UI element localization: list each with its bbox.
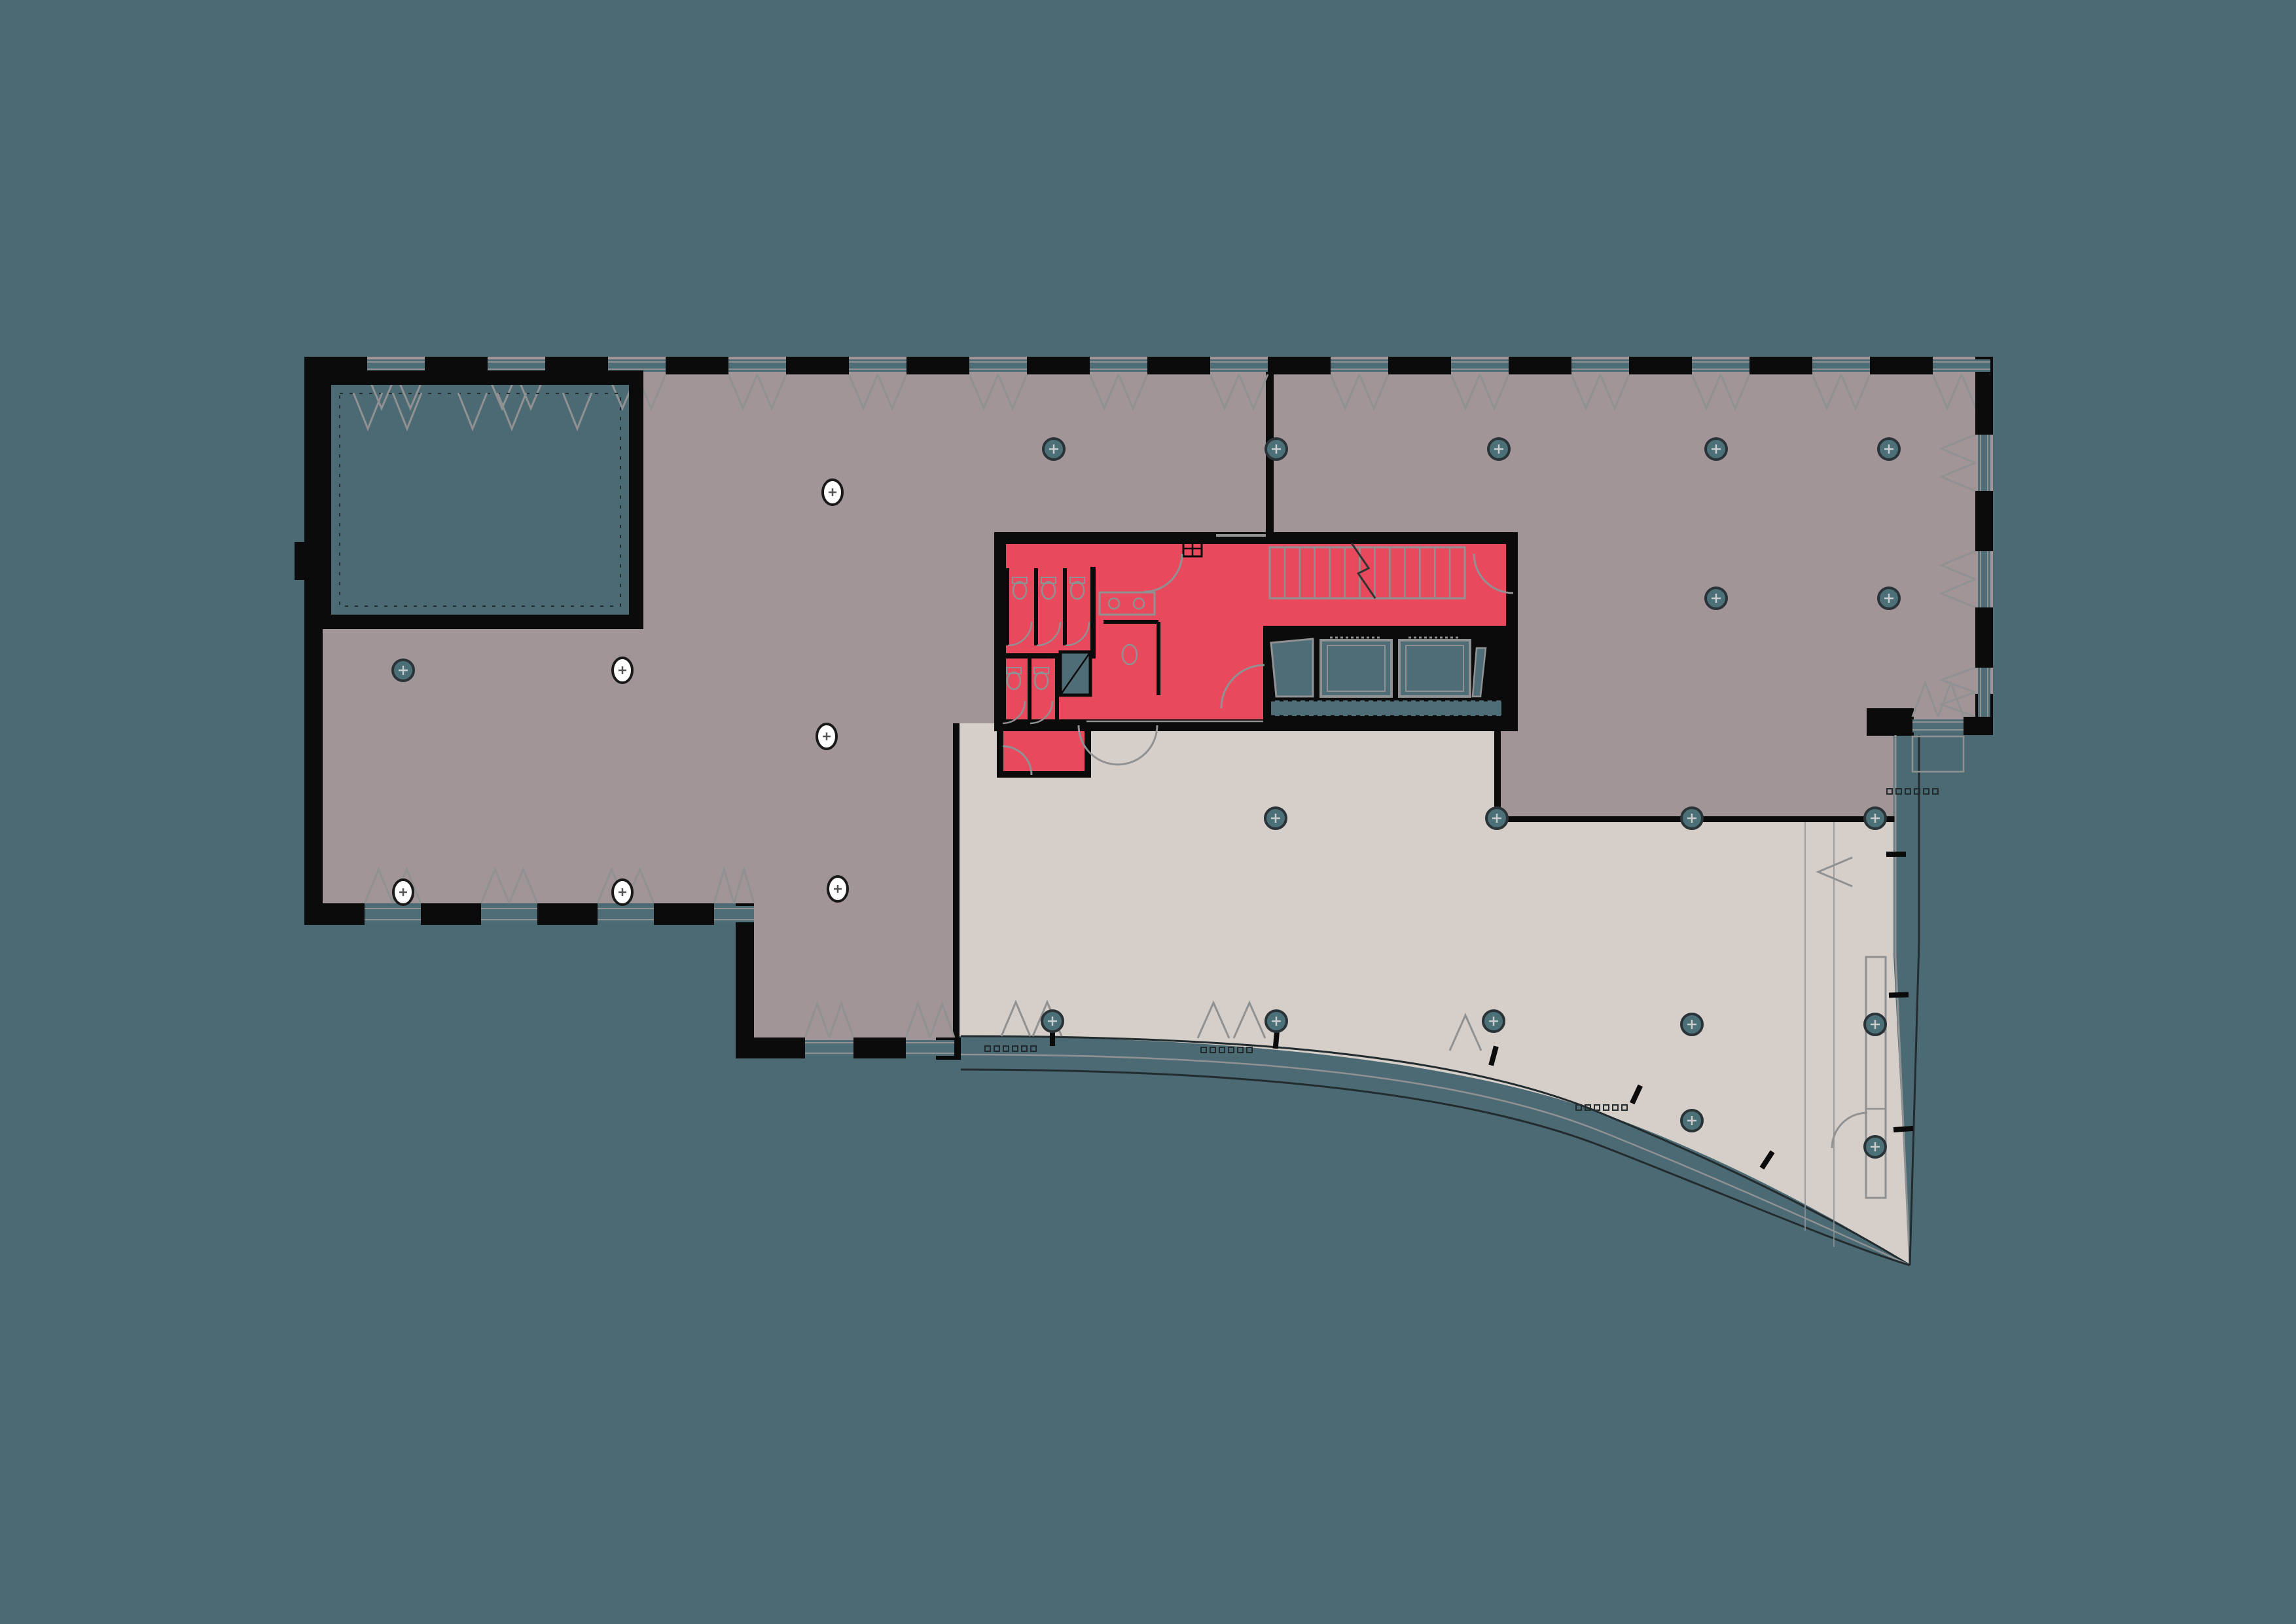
stall-partition <box>1055 659 1059 723</box>
stall-partition <box>1000 659 1004 723</box>
column-teal <box>1488 439 1509 460</box>
wall-segment <box>786 357 849 374</box>
column-white <box>613 880 632 905</box>
wall-segment <box>1975 374 1993 435</box>
stall-partition <box>1034 568 1038 645</box>
column-teal <box>1681 808 1702 829</box>
window-glass <box>1451 359 1509 372</box>
window-glass <box>1331 359 1388 372</box>
hall-east-wall-upper <box>1494 720 1501 821</box>
window-glass <box>1210 359 1268 372</box>
window-glass <box>1692 359 1749 372</box>
stall-partition <box>1063 568 1067 645</box>
elevator-car <box>1321 638 1391 696</box>
stall-partition <box>1005 568 1009 645</box>
wall-segment <box>1870 357 1933 374</box>
column-teal <box>393 660 414 681</box>
column-white <box>393 880 413 905</box>
window-glass <box>367 359 425 372</box>
stall-partition <box>1028 659 1031 723</box>
wall-segment <box>1964 717 1993 735</box>
elevator-car-box <box>1399 640 1470 696</box>
column-teal <box>1486 808 1507 829</box>
column-teal <box>1266 1011 1287 1032</box>
wall-segment <box>537 903 598 925</box>
window-glass <box>1978 435 1990 491</box>
facade-mullion-tick <box>1886 852 1906 857</box>
window-glass <box>969 359 1027 372</box>
wall-segment <box>1388 357 1451 374</box>
column-white <box>817 724 836 749</box>
southwest-step-wall <box>736 903 754 1058</box>
column-teal <box>1265 808 1286 829</box>
column-teal <box>1266 439 1287 460</box>
window-glass <box>728 359 786 372</box>
window-glass <box>488 359 545 372</box>
column-teal <box>1043 439 1064 460</box>
column-white <box>823 480 842 505</box>
window-glass <box>1978 551 1990 607</box>
window-glass <box>1571 359 1629 372</box>
elevator-car-box <box>1321 640 1391 696</box>
column-teal <box>1865 1136 1886 1157</box>
wall-segment <box>1147 357 1210 374</box>
wall-segment <box>1268 357 1331 374</box>
column-teal <box>1706 588 1727 609</box>
wall-segment <box>1027 357 1090 374</box>
wall-segment <box>853 1038 906 1058</box>
wall-segment <box>421 903 481 925</box>
wall-segment <box>753 1038 805 1058</box>
wall-segment <box>1990 357 1993 374</box>
wall-segment <box>954 1038 961 1058</box>
column-white <box>828 876 848 901</box>
window-glass <box>608 359 666 372</box>
floor-plan <box>0 0 2296 1624</box>
window-glass <box>1933 359 1990 372</box>
wall-segment <box>1975 491 1993 551</box>
elevator-shaft-left <box>1271 639 1313 696</box>
wall-segment <box>654 903 714 925</box>
wall-segment <box>1749 357 1812 374</box>
column-teal <box>1681 1110 1702 1131</box>
wall-segment <box>666 357 728 374</box>
column-teal <box>1865 1014 1886 1035</box>
column-teal <box>1865 808 1886 829</box>
wall-segment <box>304 903 365 925</box>
column-teal <box>1878 588 1899 609</box>
wall-segment <box>1867 717 1912 735</box>
window-glass <box>1978 668 1990 717</box>
elevator-car <box>1399 638 1470 696</box>
window-glass <box>849 359 906 372</box>
column-teal <box>1706 439 1727 460</box>
column-teal <box>1681 1014 1702 1035</box>
facade-mullion-tick <box>1889 992 1909 998</box>
wall-segment <box>1629 357 1692 374</box>
column-teal <box>1483 1011 1504 1032</box>
column-white <box>613 658 632 683</box>
wall-segment <box>1509 357 1571 374</box>
column-teal <box>1878 439 1899 460</box>
elevator-lobby-strip <box>1271 700 1501 716</box>
column-teal <box>1042 1011 1063 1032</box>
west-wall-notch <box>295 542 305 580</box>
wall-segment <box>1975 607 1993 668</box>
wc-partition-wall <box>1090 567 1096 659</box>
wall-segment <box>906 357 969 374</box>
window-glass <box>1090 359 1147 372</box>
hall-west-wall <box>953 723 960 1039</box>
window-glass <box>1812 359 1870 372</box>
